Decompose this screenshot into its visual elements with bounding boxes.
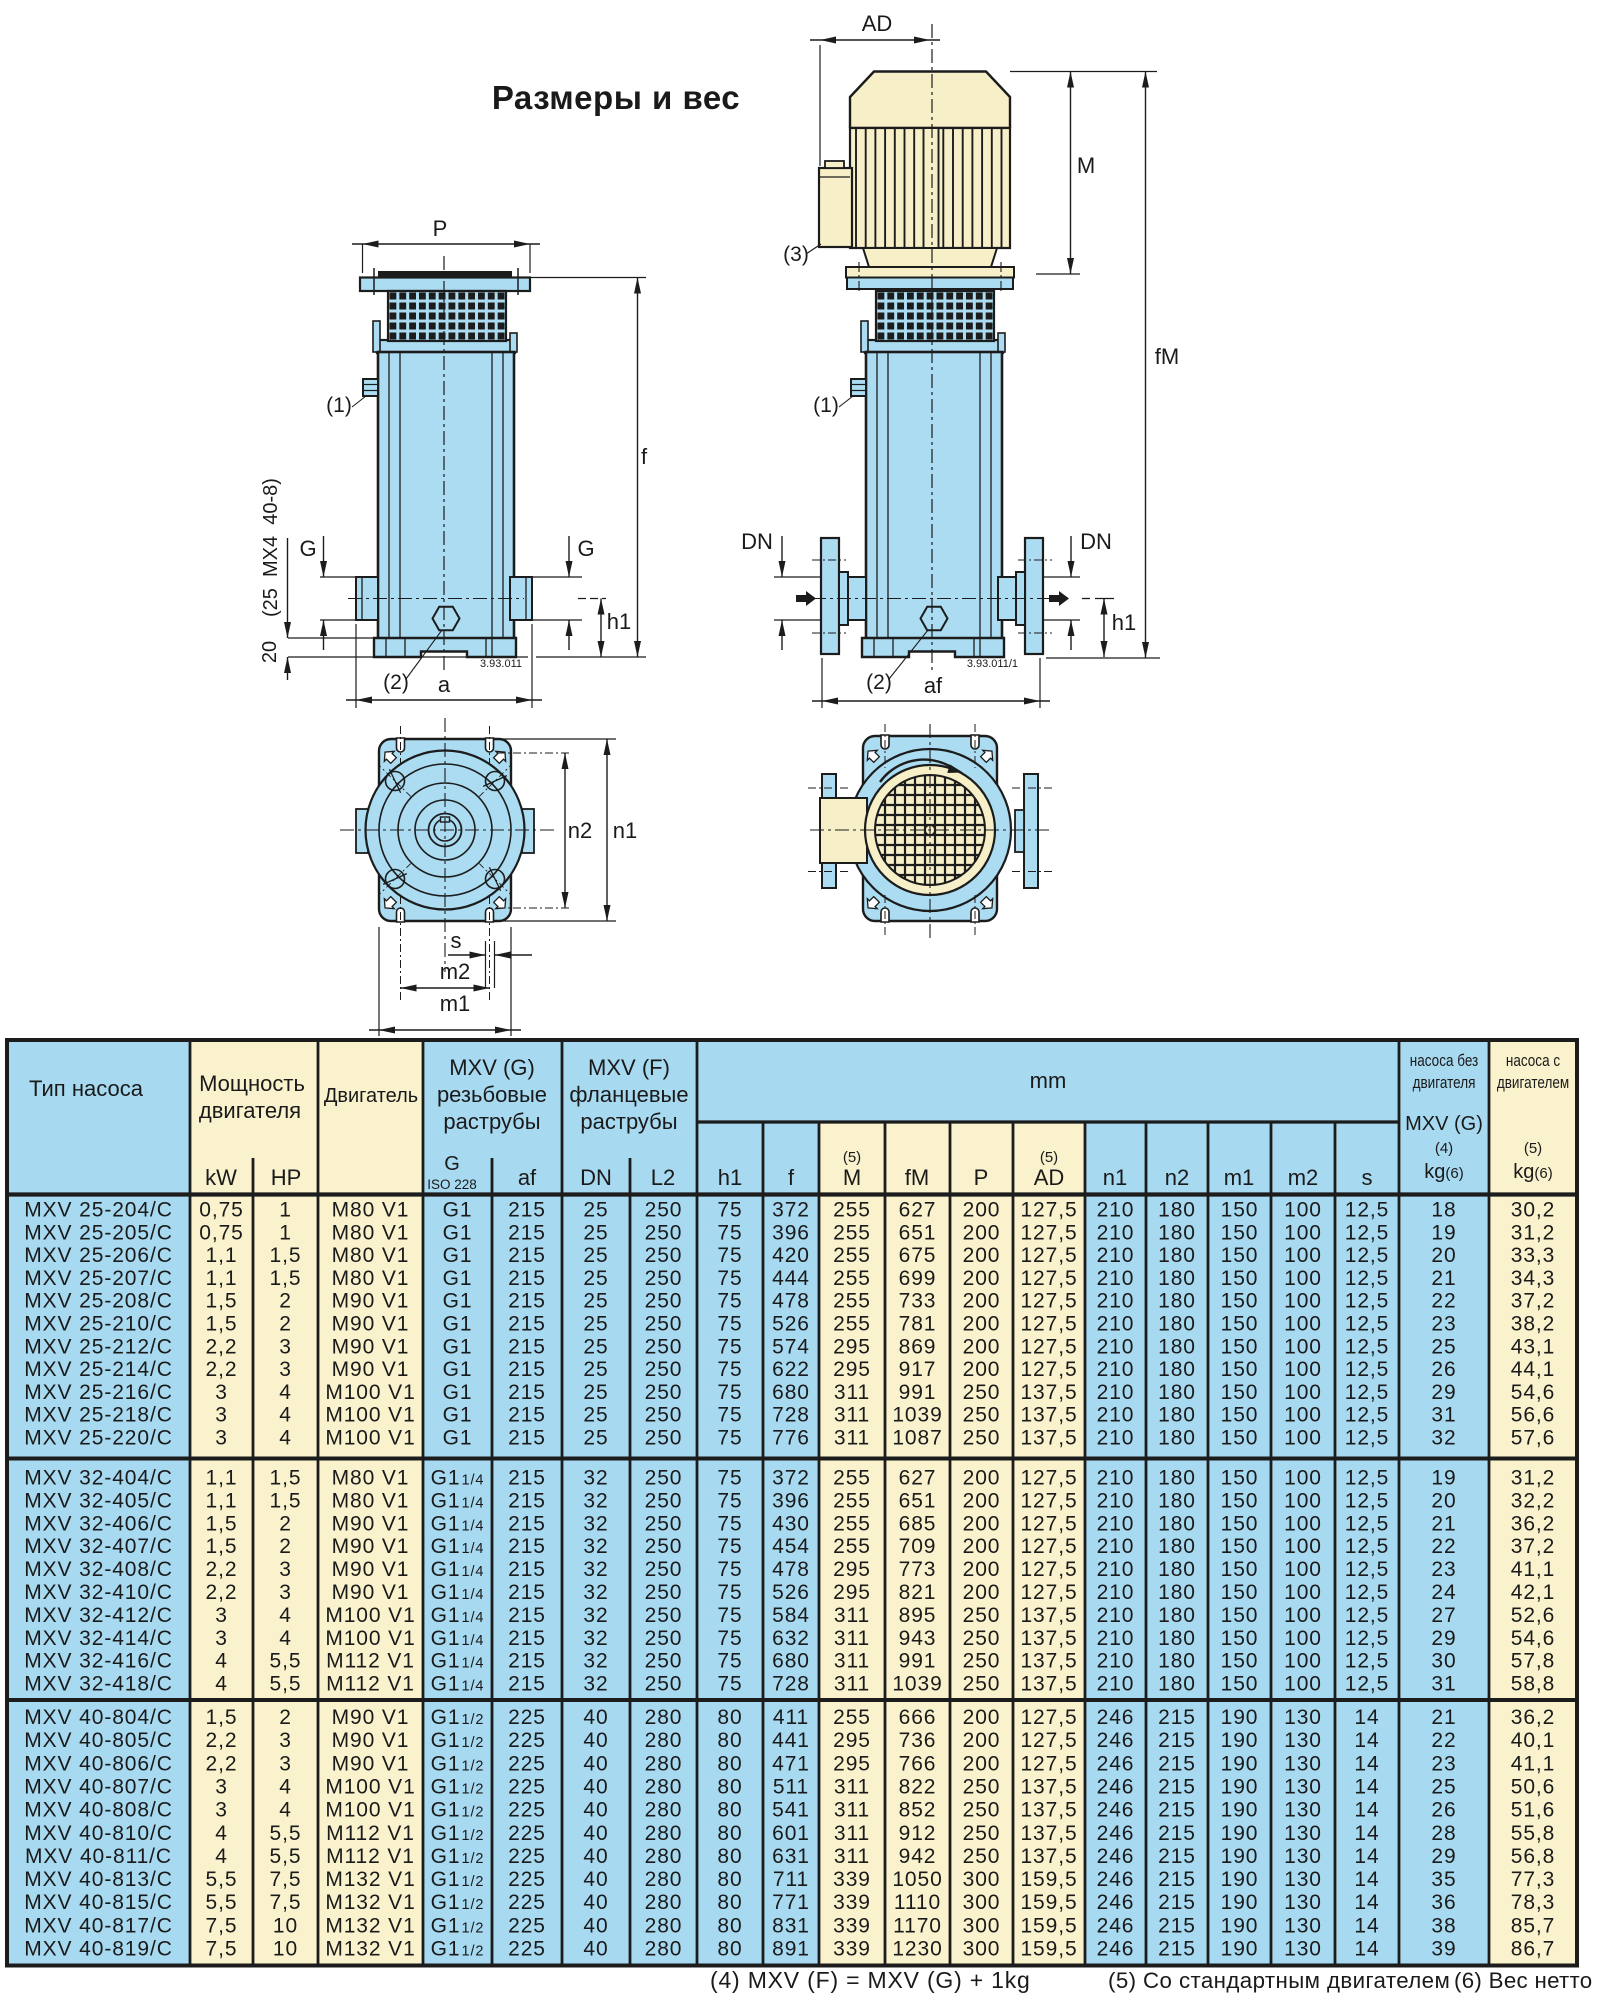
svg-text:MXV 32-405/C: MXV 32-405/C (24, 1489, 173, 1512)
svg-text:215: 215 (508, 1512, 546, 1535)
svg-text:75: 75 (717, 1604, 742, 1627)
svg-text:14: 14 (1354, 1914, 1379, 1937)
svg-text:12,5: 12,5 (1345, 1381, 1389, 1404)
svg-text:DN: DN (741, 529, 773, 554)
svg-text:574: 574 (772, 1335, 810, 1358)
svg-text:58,8: 58,8 (1511, 1673, 1555, 1696)
svg-text:150: 150 (1221, 1673, 1259, 1696)
svg-text:3: 3 (279, 1335, 292, 1358)
svg-text:100: 100 (1284, 1535, 1322, 1558)
svg-text:215: 215 (508, 1267, 546, 1290)
svg-text:215: 215 (1158, 1752, 1196, 1775)
svg-text:M90 V1: M90 V1 (332, 1290, 410, 1313)
svg-text:250: 250 (645, 1267, 683, 1290)
svg-text:n2: n2 (1165, 1165, 1189, 1190)
svg-text:215: 215 (1158, 1822, 1196, 1845)
svg-text:100: 100 (1284, 1467, 1322, 1490)
svg-text:210: 210 (1097, 1627, 1135, 1650)
svg-text:246: 246 (1097, 1914, 1135, 1937)
svg-text:831: 831 (772, 1914, 810, 1937)
svg-text:12,5: 12,5 (1345, 1290, 1389, 1313)
svg-text:280: 280 (645, 1706, 683, 1729)
svg-text:127,5: 127,5 (1020, 1489, 1077, 1512)
svg-text:mm: mm (1030, 1068, 1067, 1093)
svg-text:200: 200 (963, 1267, 1001, 1290)
svg-text:G1: G1 (443, 1335, 473, 1358)
svg-text:250: 250 (645, 1335, 683, 1358)
svg-text:180: 180 (1158, 1627, 1196, 1650)
svg-text:G1: G1 (443, 1427, 473, 1450)
svg-text:MXV (G): MXV (G) (449, 1055, 535, 1080)
svg-text:MXV 40-819/C: MXV 40-819/C (24, 1938, 173, 1961)
svg-text:100: 100 (1284, 1604, 1322, 1627)
svg-text:M80 V1: M80 V1 (332, 1267, 410, 1290)
svg-text:541: 541 (772, 1799, 810, 1822)
svg-text:40: 40 (583, 1891, 608, 1914)
svg-text:127,5: 127,5 (1020, 1512, 1077, 1535)
svg-text:5,5: 5,5 (270, 1845, 302, 1868)
svg-text:130: 130 (1284, 1914, 1322, 1937)
svg-text:311: 311 (834, 1404, 870, 1427)
svg-text:210: 210 (1097, 1427, 1135, 1450)
svg-text:55,8: 55,8 (1511, 1822, 1555, 1845)
svg-text:P: P (433, 216, 448, 241)
svg-text:M80 V1: M80 V1 (332, 1489, 410, 1512)
svg-text:225: 225 (508, 1775, 546, 1798)
svg-text:MXV (G): MXV (G) (1405, 1113, 1483, 1135)
svg-text:250: 250 (645, 1673, 683, 1696)
svg-text:773: 773 (899, 1558, 937, 1581)
svg-text:255: 255 (833, 1199, 871, 1222)
svg-text:215: 215 (508, 1558, 546, 1581)
svg-text:af: af (924, 673, 943, 698)
svg-text:526: 526 (772, 1313, 810, 1336)
svg-text:57,8: 57,8 (1511, 1650, 1555, 1673)
svg-text:2: 2 (279, 1512, 292, 1535)
svg-text:250: 250 (645, 1627, 683, 1650)
svg-text:255: 255 (833, 1244, 871, 1267)
svg-text:200: 200 (963, 1752, 1001, 1775)
svg-text:12,5: 12,5 (1345, 1581, 1389, 1604)
svg-text:150: 150 (1221, 1581, 1259, 1604)
svg-text:37,2: 37,2 (1511, 1535, 1555, 1558)
svg-text:G1: G1 (443, 1404, 473, 1427)
svg-text:339: 339 (833, 1938, 871, 1961)
svg-text:246: 246 (1097, 1729, 1135, 1752)
svg-text:(1): (1) (326, 394, 352, 417)
svg-text:246: 246 (1097, 1868, 1135, 1891)
svg-text:150: 150 (1221, 1535, 1259, 1558)
svg-text:180: 180 (1158, 1267, 1196, 1290)
svg-text:s: s (451, 928, 462, 953)
svg-text:3: 3 (279, 1729, 292, 1752)
svg-text:MXV 40-806/C: MXV 40-806/C (24, 1752, 173, 1775)
svg-text:200: 200 (963, 1729, 1001, 1752)
svg-text:130: 130 (1284, 1868, 1322, 1891)
svg-text:(2): (2) (383, 671, 409, 694)
svg-text:680: 680 (772, 1650, 810, 1673)
svg-text:295: 295 (833, 1752, 871, 1775)
svg-text:150: 150 (1221, 1313, 1259, 1336)
svg-text:14: 14 (1354, 1822, 1379, 1845)
svg-text:766: 766 (899, 1752, 937, 1775)
svg-text:190: 190 (1221, 1891, 1259, 1914)
svg-text:454: 454 (772, 1535, 810, 1558)
svg-text:36,2: 36,2 (1511, 1512, 1555, 1535)
svg-text:P: P (974, 1165, 989, 1190)
svg-text:M100 V1: M100 V1 (325, 1427, 415, 1450)
svg-text:50,6: 50,6 (1511, 1775, 1555, 1798)
svg-text:MXV 32-406/C: MXV 32-406/C (24, 1512, 173, 1535)
svg-text:G1: G1 (443, 1221, 473, 1244)
svg-text:2,2: 2,2 (206, 1581, 238, 1604)
svg-text:25: 25 (583, 1427, 608, 1450)
svg-text:h1: h1 (718, 1165, 742, 1190)
svg-text:311: 311 (834, 1650, 870, 1673)
svg-text:246: 246 (1097, 1752, 1135, 1775)
svg-text:420: 420 (772, 1244, 810, 1267)
svg-text:78,3: 78,3 (1511, 1891, 1555, 1914)
svg-text:210: 210 (1097, 1404, 1135, 1427)
svg-text:250: 250 (963, 1799, 1001, 1822)
svg-text:12,5: 12,5 (1345, 1199, 1389, 1222)
svg-text:32: 32 (583, 1627, 608, 1650)
svg-text:246: 246 (1097, 1706, 1135, 1729)
svg-text:M90 V1: M90 V1 (332, 1752, 410, 1775)
svg-text:M112 V1: M112 V1 (326, 1673, 415, 1696)
svg-text:75: 75 (717, 1627, 742, 1650)
svg-text:7,5: 7,5 (270, 1891, 302, 1914)
svg-text:85,7: 85,7 (1511, 1914, 1555, 1937)
svg-text:M100 V1: M100 V1 (325, 1775, 415, 1798)
svg-text:127,5: 127,5 (1020, 1752, 1077, 1775)
svg-text:942: 942 (899, 1845, 937, 1868)
svg-text:G1: G1 (443, 1381, 473, 1404)
svg-text:40: 40 (583, 1845, 608, 1868)
svg-text:(2): (2) (866, 671, 892, 694)
svg-text:250: 250 (963, 1604, 1001, 1627)
svg-text:622: 622 (772, 1358, 810, 1381)
svg-text:127,5: 127,5 (1020, 1581, 1077, 1604)
svg-text:32: 32 (583, 1604, 608, 1627)
svg-text:215: 215 (1158, 1891, 1196, 1914)
svg-text:AD: AD (862, 11, 893, 36)
svg-text:Тип насоса: Тип насоса (29, 1076, 144, 1101)
svg-text:80: 80 (717, 1706, 742, 1729)
svg-text:1: 1 (279, 1199, 292, 1222)
svg-text:44,1: 44,1 (1511, 1358, 1555, 1381)
svg-text:MXV 40-807/C: MXV 40-807/C (24, 1775, 173, 1798)
svg-text:771: 771 (772, 1891, 810, 1914)
svg-text:40: 40 (583, 1775, 608, 1798)
svg-text:25: 25 (1431, 1335, 1456, 1358)
svg-text:80: 80 (717, 1775, 742, 1798)
svg-text:430: 430 (772, 1512, 810, 1535)
svg-text:14: 14 (1354, 1891, 1379, 1914)
svg-text:1,5: 1,5 (206, 1512, 238, 1535)
svg-text:478: 478 (772, 1558, 810, 1581)
svg-text:3: 3 (279, 1752, 292, 1775)
svg-text:75: 75 (717, 1581, 742, 1604)
svg-text:14: 14 (1354, 1775, 1379, 1798)
svg-text:MXV 40-817/C: MXV 40-817/C (24, 1914, 173, 1937)
svg-text:250: 250 (963, 1822, 1001, 1845)
svg-text:215: 215 (508, 1650, 546, 1673)
svg-text:MXV 32-418/C: MXV 32-418/C (24, 1673, 173, 1696)
svg-text:478: 478 (772, 1290, 810, 1313)
svg-text:80: 80 (717, 1938, 742, 1961)
svg-text:3.93.011: 3.93.011 (480, 658, 522, 670)
svg-text:3: 3 (215, 1404, 228, 1427)
svg-text:311: 311 (834, 1845, 870, 1868)
svg-text:75: 75 (717, 1512, 742, 1535)
svg-text:150: 150 (1221, 1267, 1259, 1290)
svg-text:895: 895 (899, 1604, 937, 1627)
svg-text:40: 40 (583, 1914, 608, 1937)
svg-text:127,5: 127,5 (1020, 1358, 1077, 1381)
svg-text:25: 25 (1431, 1775, 1456, 1798)
svg-text:29: 29 (1431, 1845, 1456, 1868)
svg-text:411: 411 (773, 1706, 809, 1729)
svg-text:M90 V1: M90 V1 (332, 1581, 410, 1604)
svg-text:33,3: 33,3 (1511, 1244, 1555, 1267)
svg-text:раструбы: раструбы (580, 1109, 677, 1134)
svg-text:(1): (1) (813, 394, 839, 417)
svg-text:150: 150 (1221, 1604, 1259, 1627)
svg-text:210: 210 (1097, 1650, 1135, 1673)
svg-text:250: 250 (963, 1845, 1001, 1868)
svg-text:250: 250 (645, 1512, 683, 1535)
svg-text:3: 3 (215, 1799, 228, 1822)
svg-text:18: 18 (1431, 1199, 1456, 1222)
svg-text:200: 200 (963, 1535, 1001, 1558)
svg-text:137,5: 137,5 (1020, 1604, 1077, 1627)
svg-text:471: 471 (772, 1752, 810, 1775)
svg-text:G1: G1 (443, 1244, 473, 1267)
svg-text:22: 22 (1431, 1729, 1456, 1752)
svg-text:150: 150 (1221, 1404, 1259, 1427)
svg-text:80: 80 (717, 1914, 742, 1937)
svg-text:4: 4 (279, 1604, 292, 1627)
svg-text:150: 150 (1221, 1427, 1259, 1450)
svg-text:MXV 40-805/C: MXV 40-805/C (24, 1729, 173, 1752)
svg-text:100: 100 (1284, 1489, 1322, 1512)
svg-text:250: 250 (963, 1627, 1001, 1650)
svg-text:G: G (299, 536, 316, 561)
svg-text:225: 225 (508, 1845, 546, 1868)
svg-text:80: 80 (717, 1845, 742, 1868)
svg-text:1,5: 1,5 (270, 1267, 302, 1290)
svg-text:150: 150 (1221, 1290, 1259, 1313)
svg-text:852: 852 (899, 1799, 937, 1822)
svg-text:159,5: 159,5 (1020, 1938, 1077, 1961)
svg-text:29: 29 (1431, 1381, 1456, 1404)
svg-text:36,2: 36,2 (1511, 1706, 1555, 1729)
svg-text:215: 215 (508, 1199, 546, 1222)
svg-text:137,5: 137,5 (1020, 1775, 1077, 1798)
svg-text:180: 180 (1158, 1581, 1196, 1604)
svg-text:m2: m2 (440, 959, 471, 984)
svg-text:1170: 1170 (893, 1914, 942, 1937)
svg-text:295: 295 (833, 1335, 871, 1358)
svg-text:14: 14 (1354, 1729, 1379, 1752)
svg-text:137,5: 137,5 (1020, 1822, 1077, 1845)
svg-text:180: 180 (1158, 1404, 1196, 1427)
svg-text:210: 210 (1097, 1290, 1135, 1313)
svg-text:M80 V1: M80 V1 (332, 1244, 410, 1267)
svg-text:41,1: 41,1 (1511, 1558, 1555, 1581)
svg-text:280: 280 (645, 1775, 683, 1798)
svg-text:1230: 1230 (892, 1938, 942, 1961)
svg-text:57,6: 57,6 (1511, 1427, 1555, 1450)
svg-text:651: 651 (899, 1221, 937, 1244)
svg-text:200: 200 (963, 1358, 1001, 1381)
svg-text:180: 180 (1158, 1489, 1196, 1512)
svg-text:100: 100 (1284, 1244, 1322, 1267)
svg-text:250: 250 (645, 1604, 683, 1627)
svg-text:821: 821 (899, 1581, 937, 1604)
svg-text:130: 130 (1284, 1822, 1322, 1845)
svg-text:21: 21 (1431, 1267, 1456, 1290)
svg-text:23: 23 (1431, 1752, 1456, 1775)
svg-text:250: 250 (645, 1199, 683, 1222)
svg-text:210: 210 (1097, 1381, 1135, 1404)
svg-text:100: 100 (1284, 1335, 1322, 1358)
svg-text:25: 25 (583, 1313, 608, 1336)
svg-text:25: 25 (583, 1335, 608, 1358)
svg-text:3: 3 (215, 1775, 228, 1798)
svg-text:666: 666 (899, 1706, 937, 1729)
svg-text:190: 190 (1221, 1822, 1259, 1845)
svg-text:MXV 32-412/C: MXV 32-412/C (24, 1604, 173, 1627)
svg-text:MXV (F): MXV (F) (588, 1055, 670, 1080)
svg-text:295: 295 (833, 1558, 871, 1581)
svg-text:250: 250 (645, 1358, 683, 1381)
svg-text:2: 2 (279, 1706, 292, 1729)
svg-text:246: 246 (1097, 1938, 1135, 1961)
svg-text:4: 4 (215, 1673, 228, 1696)
svg-text:26: 26 (1431, 1358, 1456, 1381)
svg-text:250: 250 (645, 1467, 683, 1490)
svg-text:75: 75 (717, 1558, 742, 1581)
svg-text:127,5: 127,5 (1020, 1558, 1077, 1581)
svg-text:35: 35 (1431, 1868, 1456, 1891)
svg-text:150: 150 (1221, 1199, 1259, 1222)
svg-text:12,5: 12,5 (1345, 1404, 1389, 1427)
svg-text:75: 75 (717, 1358, 742, 1381)
svg-text:526: 526 (772, 1581, 810, 1604)
svg-text:14: 14 (1354, 1706, 1379, 1729)
svg-text:210: 210 (1097, 1581, 1135, 1604)
svg-text:100: 100 (1284, 1673, 1322, 1696)
svg-text:h1: h1 (1112, 610, 1136, 635)
svg-text:130: 130 (1284, 1938, 1322, 1961)
svg-text:246: 246 (1097, 1822, 1135, 1845)
svg-text:24: 24 (1431, 1581, 1456, 1604)
svg-text:200: 200 (963, 1706, 1001, 1729)
svg-text:56,6: 56,6 (1511, 1404, 1555, 1427)
svg-text:MXV 25-220/C: MXV 25-220/C (24, 1427, 173, 1450)
svg-text:m1: m1 (1224, 1165, 1255, 1190)
svg-text:25: 25 (583, 1404, 608, 1427)
svg-text:1,5: 1,5 (206, 1535, 238, 1558)
svg-text:2: 2 (279, 1290, 292, 1313)
svg-text:a: a (438, 672, 451, 697)
svg-text:23: 23 (1431, 1558, 1456, 1581)
svg-text:80: 80 (717, 1868, 742, 1891)
svg-text:12,5: 12,5 (1345, 1650, 1389, 1673)
svg-text:7,5: 7,5 (206, 1914, 238, 1937)
svg-text:159,5: 159,5 (1020, 1891, 1077, 1914)
svg-text:150: 150 (1221, 1627, 1259, 1650)
svg-text:40: 40 (583, 1868, 608, 1891)
svg-text:372: 372 (772, 1199, 810, 1222)
svg-text:130: 130 (1284, 1729, 1322, 1752)
svg-text:699: 699 (899, 1267, 937, 1290)
svg-text:MXV 32-410/C: MXV 32-410/C (24, 1581, 173, 1604)
svg-text:137,5: 137,5 (1020, 1845, 1077, 1868)
svg-text:M100 V1: M100 V1 (325, 1799, 415, 1822)
svg-text:150: 150 (1221, 1244, 1259, 1267)
svg-text:180: 180 (1158, 1558, 1196, 1581)
svg-text:n2: n2 (568, 818, 592, 843)
svg-text:2,2: 2,2 (206, 1558, 238, 1581)
svg-text:14: 14 (1354, 1868, 1379, 1891)
svg-text:210: 210 (1097, 1535, 1135, 1558)
svg-text:250: 250 (645, 1313, 683, 1336)
svg-text:728: 728 (772, 1673, 810, 1696)
svg-text:MXV 32-414/C: MXV 32-414/C (24, 1627, 173, 1650)
svg-text:M90 V1: M90 V1 (332, 1313, 410, 1336)
svg-text:137,5: 137,5 (1020, 1627, 1077, 1650)
svg-text:56,8: 56,8 (1511, 1845, 1555, 1868)
svg-text:180: 180 (1158, 1650, 1196, 1673)
svg-text:190: 190 (1221, 1799, 1259, 1822)
svg-text:311: 311 (834, 1627, 870, 1650)
svg-text:DN: DN (580, 1165, 612, 1190)
svg-text:(6) Вес нетто: (6) Вес нетто (1454, 1968, 1593, 1993)
svg-text:280: 280 (645, 1891, 683, 1914)
svg-text:210: 210 (1097, 1199, 1135, 1222)
svg-text:215: 215 (1158, 1799, 1196, 1822)
svg-text:двигателем: двигателем (1497, 1074, 1569, 1093)
svg-text:Мощность: Мощность (199, 1071, 305, 1096)
svg-text:1087: 1087 (892, 1427, 942, 1450)
svg-text:137,5: 137,5 (1020, 1381, 1077, 1404)
svg-text:30,2: 30,2 (1511, 1199, 1555, 1222)
svg-text:M132 V1: M132 V1 (325, 1891, 415, 1914)
svg-text:601: 601 (772, 1822, 810, 1845)
svg-text:250: 250 (963, 1673, 1001, 1696)
svg-text:150: 150 (1221, 1467, 1259, 1490)
svg-text:ISO 228: ISO 228 (427, 1177, 477, 1192)
svg-text:(4) MXV (F) = MXV (G) + 1kg: (4) MXV (F) = MXV (G) + 1kg (710, 1967, 1031, 1993)
svg-text:100: 100 (1284, 1627, 1322, 1650)
svg-text:M100 V1: M100 V1 (325, 1604, 415, 1627)
svg-text:215: 215 (508, 1581, 546, 1604)
svg-text:225: 225 (508, 1938, 546, 1961)
svg-text:80: 80 (717, 1822, 742, 1845)
svg-text:fM: fM (1155, 344, 1179, 369)
svg-text:180: 180 (1158, 1358, 1196, 1381)
svg-text:215: 215 (508, 1604, 546, 1627)
svg-text:246: 246 (1097, 1845, 1135, 1868)
svg-text:130: 130 (1284, 1845, 1322, 1868)
svg-text:(5) Со стандартным двигателем: (5) Со стандартным двигателем (1108, 1968, 1450, 1993)
svg-text:180: 180 (1158, 1604, 1196, 1627)
svg-text:190: 190 (1221, 1752, 1259, 1775)
svg-text:m1: m1 (440, 991, 471, 1016)
